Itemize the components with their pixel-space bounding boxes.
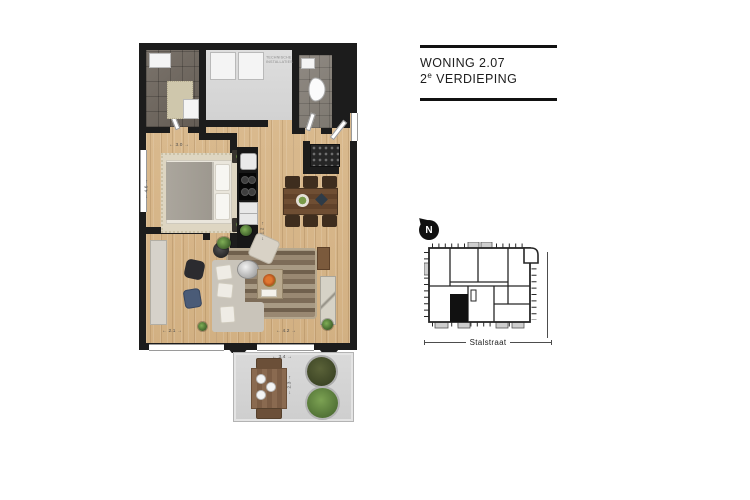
kitchen-sink-icon — [240, 153, 257, 170]
site-map-dimension-line — [547, 252, 548, 338]
technical-unit-1 — [210, 52, 236, 80]
pouf-dark — [183, 258, 206, 281]
washbasin-icon — [183, 99, 199, 119]
unit-core — [471, 290, 476, 301]
wall-right-lower — [350, 141, 357, 350]
kitchen-plant-icon — [240, 225, 252, 236]
sofa-cushion — [216, 282, 233, 299]
dim-balcony-width: ← 3.4 → — [272, 355, 292, 360]
wall-bathroom-right — [199, 50, 206, 133]
title-block: WONING 2.07 2e VERDIEPING — [420, 45, 557, 101]
plant-icon-tiny — [198, 322, 207, 331]
building-corner-round — [524, 248, 538, 263]
sideboard — [150, 240, 167, 325]
bed-blanket — [166, 162, 214, 220]
dining-chair — [322, 176, 337, 188]
book-icon — [261, 289, 277, 297]
technical-room-label: TECHNISCHE INSTALLATIES — [266, 56, 292, 65]
dim-living-left: ← 2.1 → — [162, 329, 182, 334]
dining-chair — [303, 215, 318, 227]
wall-toilet-bottom-a — [299, 128, 305, 134]
site-map — [424, 242, 548, 336]
wall-bathroom-bottom-b — [188, 127, 199, 133]
dim-balcony-depth: ← 2.3 → — [287, 375, 292, 395]
plant-icon-small — [322, 319, 333, 330]
floor-label: VERDIEPING — [432, 72, 517, 86]
bed-pillow-1 — [215, 164, 230, 191]
radiator-icon — [310, 144, 340, 167]
toilet-sink-icon — [301, 58, 315, 69]
wall-toilet-top — [292, 43, 357, 55]
side-table-round — [238, 261, 258, 278]
burner — [248, 176, 256, 184]
wall-technical-bottom — [206, 120, 268, 127]
title-rule-top — [420, 45, 557, 48]
shower-icon — [149, 53, 171, 68]
floor-title: 2e VERDIEPING — [420, 71, 517, 86]
street-line-left — [424, 342, 466, 343]
floorplan-page: TECHNISCHE INSTALLATIES — [0, 0, 750, 500]
technical-unit-2 — [238, 52, 264, 80]
pouf-blue — [183, 288, 203, 309]
plant-leaves-icon — [217, 237, 231, 249]
fruit-bowl-icon — [296, 194, 309, 207]
plate-icon — [256, 390, 266, 400]
wall-niche-bottom — [303, 167, 339, 174]
wall-toilet-bottom-b — [321, 128, 332, 134]
tall-cabinet-mirror — [320, 276, 336, 325]
title-rule-bottom — [420, 98, 557, 101]
dim-living-right: ← 4.2 → — [276, 329, 296, 334]
wood-bench — [317, 247, 330, 270]
bed-pillow-2 — [215, 193, 230, 220]
north-arrow-icon: N — [419, 220, 439, 240]
balcony-chair-2 — [256, 408, 282, 419]
street-label: Stalstraat — [470, 338, 507, 347]
street-row: Stalstraat — [424, 336, 552, 348]
plate-icon — [266, 382, 276, 392]
dim-hall-width: ← 1.2 → — [260, 221, 265, 241]
cooktop-icon — [239, 173, 256, 200]
balcony: ← 3.4 → ← 2.3 → — [233, 352, 354, 422]
planter-green-icon — [307, 388, 338, 418]
dim-bedroom-width: ← 3.0 → — [169, 143, 189, 148]
dining-chair — [285, 215, 300, 227]
building-outline — [429, 248, 530, 322]
sofa-cushion — [219, 305, 235, 323]
highlighted-unit — [450, 294, 468, 322]
entrance-door-opening — [351, 113, 358, 141]
burner — [248, 188, 256, 196]
flowers-icon — [263, 274, 276, 287]
wall-bedroom-top — [199, 133, 237, 140]
north-label: N — [425, 225, 432, 236]
dining-chair — [303, 176, 318, 188]
plate-icon — [256, 374, 266, 384]
wall-technical-right — [292, 50, 299, 134]
kitchen-appliance-2 — [239, 213, 258, 225]
dining-chair — [285, 176, 300, 188]
dining-table — [283, 188, 338, 215]
planter-dark-icon — [307, 357, 336, 386]
living-window-left — [149, 344, 224, 351]
sofa-cushion — [215, 264, 233, 281]
apartment-floorplan: TECHNISCHE INSTALLATIES — [139, 43, 357, 350]
unit-title: WONING 2.07 — [420, 56, 505, 70]
wall-toilet-right — [332, 55, 350, 128]
street-line-right — [510, 342, 552, 343]
living-window-right — [257, 344, 314, 351]
dining-chair — [322, 215, 337, 227]
wall-bathroom-bottom-a — [146, 127, 170, 133]
dim-bedroom-depth: ← 4.6 → — [144, 179, 149, 199]
